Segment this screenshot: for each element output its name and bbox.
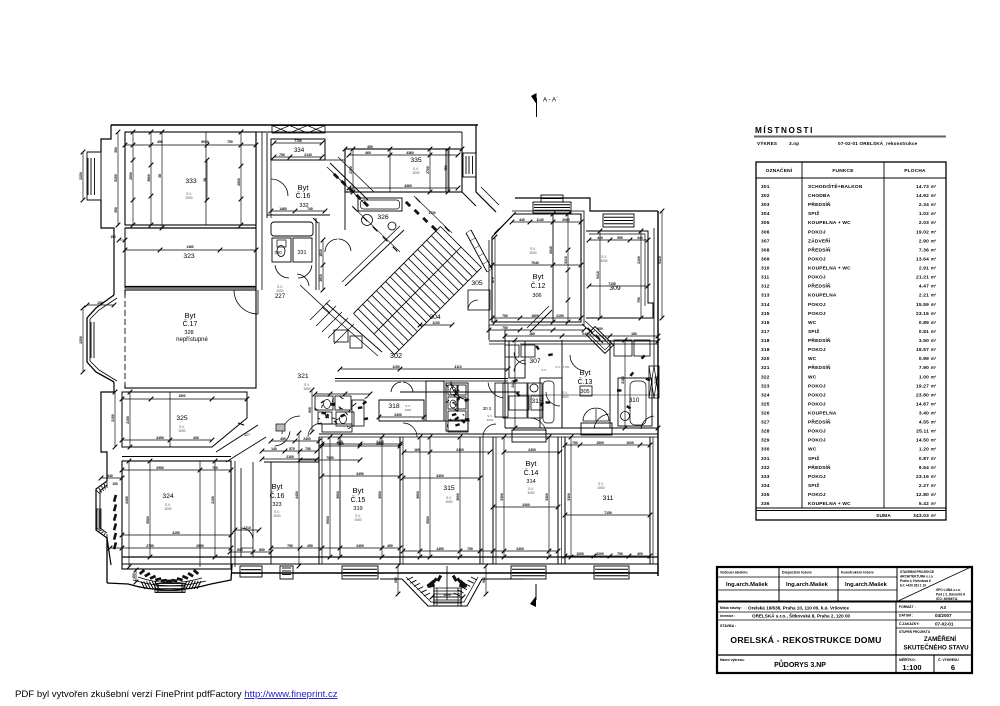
svg-text:STUPEŇ PROJEKTU: STUPEŇ PROJEKTU — [899, 629, 931, 634]
svg-text:950: 950 — [597, 327, 603, 331]
svg-text:7150: 7150 — [604, 511, 612, 515]
svg-text:1760: 1760 — [563, 365, 570, 369]
svg-text:19.57: 19.57 — [916, 347, 929, 353]
svg-text:2400: 2400 — [394, 413, 402, 417]
svg-text:POKOJ: POKOJ — [808, 256, 826, 262]
svg-text:m²: m² — [931, 211, 937, 216]
svg-text:180: 180 — [631, 332, 637, 336]
svg-text:350: 350 — [114, 147, 118, 153]
svg-text:m²: m² — [931, 429, 937, 434]
svg-text:3.40: 3.40 — [919, 411, 929, 417]
svg-text:2060: 2060 — [562, 218, 570, 222]
svg-text:IČO: 40986711: IČO: 40986711 — [936, 596, 958, 601]
svg-text:5500: 5500 — [146, 516, 150, 524]
svg-text:450: 450 — [307, 544, 313, 548]
svg-text:3050: 3050 — [303, 387, 310, 391]
svg-text:Č.14: Č.14 — [524, 468, 539, 477]
svg-text:2100: 2100 — [637, 256, 641, 264]
svg-text:329: 329 — [761, 438, 770, 444]
svg-text:440: 440 — [107, 474, 113, 478]
svg-text:750: 750 — [467, 547, 473, 551]
svg-text:310: 310 — [629, 397, 640, 404]
svg-text:Pod z 2, Dánovité 8: Pod z 2, Dánovité 8 — [936, 593, 965, 597]
svg-text:1140: 1140 — [536, 218, 543, 222]
svg-text:307: 307 — [529, 358, 541, 365]
svg-text:Byt: Byt — [185, 311, 197, 320]
svg-text:1100: 1100 — [432, 321, 439, 325]
svg-text:2150: 2150 — [211, 496, 215, 504]
svg-text:2400: 2400 — [376, 440, 384, 444]
svg-text:Dispoziční řešení: Dispoziční řešení — [782, 571, 813, 575]
svg-text:3600: 3600 — [456, 493, 460, 501]
svg-text:334: 334 — [761, 483, 770, 489]
svg-text:335: 335 — [410, 157, 422, 164]
svg-text:3300: 3300 — [500, 493, 504, 501]
svg-text:m²: m² — [931, 184, 937, 189]
svg-text:327: 327 — [244, 433, 250, 437]
svg-text:Byt: Byt — [580, 368, 592, 377]
svg-text:3600: 3600 — [336, 491, 340, 499]
svg-text:19.27: 19.27 — [916, 383, 929, 389]
svg-text:m²: m² — [931, 374, 937, 379]
svg-text:2640: 2640 — [549, 246, 553, 254]
svg-text:5410: 5410 — [658, 256, 662, 264]
svg-text:m²: m² — [931, 302, 937, 307]
svg-text:POKOJ: POKOJ — [808, 492, 826, 498]
svg-text:2150: 2150 — [556, 314, 564, 318]
svg-text:1000: 1000 — [576, 552, 584, 556]
svg-text:332: 332 — [761, 465, 770, 471]
svg-text:5500: 5500 — [326, 516, 330, 524]
svg-text:Název výkresu:: Název výkresu: — [720, 658, 745, 662]
svg-text:m²: m² — [931, 338, 937, 343]
svg-text:6: 6 — [951, 663, 955, 672]
svg-text:CHODBA: CHODBA — [808, 193, 831, 199]
svg-text:4.47: 4.47 — [919, 284, 929, 290]
svg-text:m²: m² — [931, 220, 937, 225]
svg-text:326: 326 — [377, 214, 389, 221]
svg-text:14.50: 14.50 — [916, 438, 929, 444]
svg-text:19.02: 19.02 — [916, 229, 929, 235]
svg-text:Praha 4, Hvězdova 6: Praha 4, Hvězdova 6 — [900, 579, 931, 583]
svg-text:nepřístupné: nepřístupné — [176, 337, 208, 343]
svg-text:319: 319 — [353, 506, 362, 512]
svg-text:3300: 3300 — [567, 493, 571, 501]
svg-text:310: 310 — [761, 266, 770, 272]
svg-text:POKOJ: POKOJ — [808, 302, 826, 308]
svg-text:900: 900 — [394, 577, 398, 583]
svg-text:2400: 2400 — [303, 437, 311, 441]
svg-text:m²: m² — [931, 501, 937, 506]
svg-text:POKOJ: POKOJ — [808, 401, 826, 407]
svg-text:900: 900 — [482, 577, 486, 583]
svg-text:7.90: 7.90 — [919, 365, 929, 371]
svg-text:308: 308 — [761, 247, 770, 253]
svg-text:POKOJ: POKOJ — [808, 429, 826, 435]
svg-text:POKOJ: POKOJ — [808, 347, 826, 353]
svg-text:30 2: 30 2 — [483, 406, 492, 411]
svg-text:302: 302 — [390, 351, 402, 360]
svg-text:750: 750 — [287, 544, 293, 548]
svg-text:m²: m² — [931, 284, 937, 289]
svg-text:3050: 3050 — [487, 418, 494, 422]
svg-text:2250: 2250 — [79, 336, 83, 344]
svg-text:15.59: 15.59 — [916, 302, 929, 308]
svg-text:850: 850 — [237, 548, 243, 552]
svg-text:7750: 7750 — [294, 139, 302, 143]
svg-text:450: 450 — [367, 145, 373, 149]
svg-text:306: 306 — [532, 293, 541, 299]
svg-text:7150: 7150 — [608, 282, 616, 286]
svg-text:m²: m² — [931, 456, 937, 461]
svg-text:7040: 7040 — [531, 261, 539, 265]
svg-text:750: 750 — [502, 326, 508, 330]
svg-text:m²: m² — [931, 275, 937, 280]
svg-text:307: 307 — [761, 238, 770, 244]
svg-text:KOUPELNA: KOUPELNA — [808, 411, 837, 417]
svg-text:Ing.arch.Mašek: Ing.arch.Mašek — [726, 582, 769, 588]
svg-text:3050: 3050 — [600, 259, 607, 263]
svg-text:Č.16: Č.16 — [270, 491, 285, 500]
svg-text:ORELSKÁ - REKOSTRUKCE DOMU: ORELSKÁ - REKOSTRUKCE DOMU — [730, 635, 881, 645]
svg-text:25.11: 25.11 — [916, 429, 929, 435]
svg-text:750: 750 — [637, 297, 641, 303]
svg-text:14.92: 14.92 — [916, 193, 929, 199]
svg-text:1.00: 1.00 — [919, 374, 929, 380]
svg-text:Č.17: Č.17 — [183, 319, 198, 328]
svg-text:5410: 5410 — [596, 271, 600, 279]
svg-text:4150: 4150 — [172, 531, 180, 535]
svg-text:m²: m² — [931, 247, 937, 252]
svg-text:m²: m² — [931, 465, 937, 470]
svg-text:400: 400 — [637, 552, 643, 556]
svg-text:5500: 5500 — [426, 516, 430, 524]
svg-text:SUMA: SUMA — [876, 513, 891, 519]
svg-text:04/2007: 04/2007 — [935, 613, 952, 618]
svg-text:m²: m² — [931, 383, 937, 388]
svg-text:m²: m² — [931, 392, 937, 397]
svg-text:2150: 2150 — [126, 416, 130, 424]
svg-text:POKOJ: POKOJ — [808, 311, 826, 317]
svg-text:POKOJ: POKOJ — [808, 438, 826, 444]
svg-text:WC: WC — [808, 447, 817, 453]
svg-text:3.50: 3.50 — [919, 338, 929, 344]
svg-text:38: 38 — [158, 174, 162, 178]
svg-text:23.80: 23.80 — [916, 392, 929, 398]
svg-text:KOUPELNA + WC: KOUPELNA + WC — [808, 220, 851, 226]
svg-text:3450: 3450 — [356, 472, 364, 476]
svg-text:311: 311 — [761, 275, 769, 281]
svg-text:9.64: 9.64 — [919, 465, 929, 471]
svg-text:3050: 3050 — [527, 491, 534, 495]
svg-text:2.34: 2.34 — [919, 202, 929, 208]
svg-text:POKOJ: POKOJ — [808, 275, 826, 281]
svg-text:321: 321 — [761, 365, 770, 371]
svg-text:14.87: 14.87 — [916, 401, 929, 407]
svg-text:160: 160 — [414, 448, 420, 452]
svg-text:4.55: 4.55 — [919, 420, 929, 426]
svg-text:7.36: 7.36 — [919, 247, 929, 253]
svg-text:3050: 3050 — [178, 429, 185, 433]
svg-text:4360: 4360 — [406, 151, 414, 155]
svg-text:314: 314 — [526, 479, 535, 485]
svg-text:850: 850 — [259, 548, 265, 552]
svg-text:Ing.arch.Mašek: Ing.arch.Mašek — [786, 582, 829, 588]
svg-text:3050: 3050 — [276, 289, 283, 293]
svg-text:Č.15: Č.15 — [351, 495, 366, 504]
svg-text:0.89: 0.89 — [919, 320, 929, 326]
svg-text:450: 450 — [132, 573, 136, 579]
svg-text:313: 313 — [761, 293, 770, 299]
svg-text:VÝKRES: VÝKRES — [757, 140, 777, 146]
svg-text:301: 301 — [761, 184, 770, 190]
svg-text:3600: 3600 — [378, 491, 382, 499]
svg-text:323: 323 — [183, 253, 195, 260]
svg-text:140: 140 — [271, 447, 277, 451]
svg-text:MĚŘÍTKO:: MĚŘÍTKO: — [899, 657, 916, 662]
svg-text:317: 317 — [761, 329, 770, 335]
svg-text:2140: 2140 — [304, 153, 312, 157]
svg-text:S.V.: S.V. — [541, 368, 547, 372]
svg-text:2150: 2150 — [111, 414, 115, 422]
svg-text:450: 450 — [387, 544, 393, 548]
svg-text:Vedoucí ateliéru: Vedoucí ateliéru — [720, 571, 748, 575]
svg-text:326: 326 — [761, 411, 770, 417]
svg-text:m²: m² — [931, 293, 937, 298]
svg-text:323: 323 — [272, 502, 281, 508]
svg-text:Č.13: Č.13 — [578, 377, 593, 386]
svg-text:Orelská 16/638, Praha 10, 110: Orelská 16/638, Praha 10, 110 00, k.ú. V… — [748, 606, 849, 611]
svg-text:316: 316 — [761, 320, 770, 326]
svg-text:3050: 3050 — [445, 500, 452, 504]
svg-text:m²: m² — [931, 311, 937, 316]
svg-text:5210: 5210 — [564, 256, 568, 264]
svg-text:Ing.arch.Mašek: Ing.arch.Mašek — [845, 582, 888, 588]
svg-text:1500: 1500 — [443, 593, 451, 597]
svg-text:327: 327 — [761, 420, 770, 426]
svg-text:MÍSTNOSTI: MÍSTNOSTI — [755, 125, 814, 135]
svg-text:2.03: 2.03 — [919, 220, 929, 226]
svg-text:3400: 3400 — [436, 474, 444, 478]
svg-text:3050: 3050 — [412, 171, 419, 175]
svg-text:Č.ZAKÁZKY:: Č.ZAKÁZKY: — [899, 621, 919, 626]
svg-text:336: 336 — [761, 501, 770, 507]
svg-text:3050: 3050 — [185, 196, 192, 200]
svg-text:m²: m² — [931, 329, 937, 334]
svg-text:331: 331 — [298, 250, 307, 256]
svg-text:2700: 2700 — [426, 166, 430, 174]
svg-text:1500: 1500 — [596, 441, 604, 445]
svg-text:3.np: 3.np — [789, 141, 799, 146]
svg-text:328: 328 — [184, 330, 193, 336]
svg-text:Č. VÝKRESU: Č. VÝKRESU — [938, 657, 959, 662]
svg-text:PDF byl vytvořen zkušební verz: PDF byl vytvořen zkušební verzí FinePrin… — [15, 689, 338, 700]
svg-text:2.91: 2.91 — [919, 266, 929, 272]
svg-text:2400: 2400 — [522, 503, 530, 507]
svg-text:DATUM :: DATUM : — [899, 614, 913, 618]
svg-text:150: 150 — [97, 301, 103, 305]
svg-text:2400: 2400 — [516, 547, 524, 551]
svg-text:m²: m² — [931, 438, 937, 443]
svg-text:3050: 3050 — [529, 251, 536, 255]
svg-text:POKOJ: POKOJ — [808, 474, 826, 480]
svg-text:1360: 1360 — [186, 245, 193, 249]
svg-text:333: 333 — [761, 474, 770, 480]
svg-text:4110: 4110 — [454, 365, 461, 369]
svg-text:324: 324 — [162, 493, 174, 500]
svg-text:950: 950 — [617, 236, 623, 240]
svg-text:0.87: 0.87 — [919, 456, 929, 462]
svg-text:FUNKCE: FUNKCE — [832, 168, 854, 174]
svg-text:321: 321 — [297, 373, 309, 380]
svg-text:1.02: 1.02 — [919, 211, 929, 217]
svg-text:Byt: Byt — [298, 183, 310, 192]
svg-text:311: 311 — [603, 495, 614, 502]
svg-text:2950: 2950 — [156, 466, 164, 470]
svg-text:333: 333 — [185, 178, 197, 185]
svg-text:750: 750 — [227, 140, 233, 144]
svg-text:2440: 2440 — [654, 376, 658, 384]
svg-text:324: 324 — [761, 392, 770, 398]
svg-text:m²: m² — [931, 365, 937, 370]
svg-text:KOUPELNA + WC: KOUPELNA + WC — [808, 501, 851, 507]
svg-text:STAVBA :: STAVBA : — [720, 624, 736, 628]
svg-text:3050: 3050 — [273, 514, 280, 518]
svg-text:1150: 1150 — [392, 365, 399, 369]
svg-text:2200: 2200 — [596, 552, 604, 556]
svg-text:2600: 2600 — [237, 178, 241, 186]
svg-text:0.99: 0.99 — [919, 356, 929, 362]
svg-text:1610: 1610 — [319, 249, 323, 257]
svg-text:870: 870 — [491, 277, 495, 283]
svg-text:SPO LUNA s.r.o.: SPO LUNA s.r.o. — [936, 588, 961, 592]
svg-text:23.16: 23.16 — [916, 474, 929, 480]
svg-text:3600: 3600 — [416, 491, 420, 499]
svg-text:900: 900 — [308, 407, 312, 413]
svg-text:13.64: 13.64 — [916, 256, 929, 262]
svg-text:S.V.: S.V. — [555, 365, 561, 369]
svg-text:m²: m² — [931, 193, 937, 198]
svg-text:14.73: 14.73 — [916, 184, 929, 190]
svg-text:2400: 2400 — [528, 448, 536, 452]
svg-text:309: 309 — [761, 256, 770, 262]
svg-text:m²: m² — [931, 356, 937, 361]
svg-text:750: 750 — [572, 441, 578, 445]
svg-text:5250: 5250 — [114, 174, 118, 182]
svg-text:150: 150 — [110, 235, 116, 239]
svg-text:750: 750 — [305, 447, 311, 451]
svg-text:WC: WC — [808, 374, 817, 380]
svg-text:305: 305 — [580, 389, 589, 395]
svg-text:303: 303 — [761, 202, 770, 208]
svg-text:Byt: Byt — [353, 486, 365, 495]
svg-text:5000: 5000 — [201, 140, 209, 144]
svg-text:334: 334 — [294, 147, 305, 154]
svg-text:315: 315 — [443, 485, 455, 492]
svg-text:Místo stavby:: Místo stavby: — [720, 606, 742, 610]
svg-text:m²: m² — [931, 266, 937, 271]
svg-text:POKOJ: POKOJ — [808, 383, 826, 389]
svg-text:KOUPELNA + WC: KOUPELNA + WC — [808, 266, 851, 272]
svg-text:m²: m² — [931, 474, 937, 479]
svg-text:5.42: 5.42 — [919, 501, 929, 507]
svg-text:302: 302 — [761, 193, 770, 199]
svg-text:315: 315 — [761, 311, 770, 317]
svg-text:21.21: 21.21 — [916, 275, 929, 281]
svg-text:350: 350 — [114, 207, 118, 213]
svg-text:POKOJ: POKOJ — [808, 392, 826, 398]
svg-text:FORMÁT :: FORMÁT : — [899, 604, 916, 609]
svg-text:320: 320 — [761, 356, 770, 362]
svg-text:PLOCHA: PLOCHA — [904, 168, 926, 174]
svg-text:2160: 2160 — [286, 455, 294, 459]
svg-text:343.03: 343.03 — [913, 513, 929, 519]
svg-text:335: 335 — [761, 492, 770, 498]
svg-text:227: 227 — [275, 293, 286, 300]
svg-text:570: 570 — [289, 447, 295, 451]
svg-text:1:100: 1:100 — [902, 663, 921, 672]
svg-text:322: 322 — [761, 374, 770, 380]
svg-text:440: 440 — [637, 236, 643, 240]
svg-text:1.20: 1.20 — [919, 447, 929, 453]
svg-text:m²: m² — [931, 447, 937, 452]
svg-text:3450: 3450 — [156, 436, 164, 440]
svg-text:314: 314 — [761, 302, 770, 308]
svg-text:150: 150 — [112, 482, 118, 486]
svg-text:ORELSKÁ s.r.o., Šítkovská 8, P: ORELSKÁ s.r.o., Šítkovská 8, Praha 2, 12… — [752, 612, 850, 619]
svg-text:m²: m² — [931, 202, 937, 207]
svg-text:330: 330 — [274, 250, 282, 255]
svg-text:328: 328 — [761, 429, 770, 435]
svg-text:m²: m² — [931, 492, 937, 497]
svg-text:2450: 2450 — [125, 496, 129, 504]
svg-text:m²: m² — [931, 420, 937, 425]
svg-text:332: 332 — [299, 203, 308, 209]
svg-text:12.80: 12.80 — [916, 492, 929, 498]
svg-text:Byt: Byt — [272, 482, 284, 491]
svg-text:4360: 4360 — [404, 184, 412, 188]
svg-text:Č.12: Č.12 — [531, 281, 546, 290]
svg-text:2.90: 2.90 — [919, 238, 929, 244]
svg-text:325: 325 — [761, 401, 770, 407]
svg-text:306: 306 — [761, 229, 770, 235]
svg-text:2550: 2550 — [129, 172, 133, 180]
svg-text:0.81: 0.81 — [919, 329, 929, 335]
svg-text:23.16: 23.16 — [916, 311, 929, 317]
svg-text:450: 450 — [280, 437, 286, 441]
svg-text:Byt: Byt — [533, 272, 545, 281]
svg-text:3300: 3300 — [545, 493, 549, 501]
svg-text:2.21: 2.21 — [919, 293, 929, 299]
svg-text:1500: 1500 — [178, 394, 185, 398]
svg-text:750: 750 — [502, 314, 508, 318]
svg-text:4450: 4450 — [295, 491, 299, 499]
svg-text:305: 305 — [761, 220, 770, 226]
svg-text:325: 325 — [176, 415, 188, 422]
svg-text:180: 180 — [529, 332, 535, 336]
svg-text:ZAMĚŘENÍ: ZAMĚŘENÍ — [924, 635, 957, 643]
svg-text:450: 450 — [337, 440, 343, 444]
svg-text:305: 305 — [471, 280, 483, 287]
svg-text:312: 312 — [761, 284, 770, 290]
svg-text:2250: 2250 — [79, 172, 83, 180]
svg-text:1730: 1730 — [428, 211, 435, 215]
svg-text:m²: m² — [931, 401, 937, 406]
svg-text:2100: 2100 — [621, 376, 625, 384]
svg-text:Investor :: Investor : — [720, 614, 735, 618]
svg-text:3050: 3050 — [405, 408, 412, 412]
svg-text:Byt: Byt — [526, 459, 538, 468]
